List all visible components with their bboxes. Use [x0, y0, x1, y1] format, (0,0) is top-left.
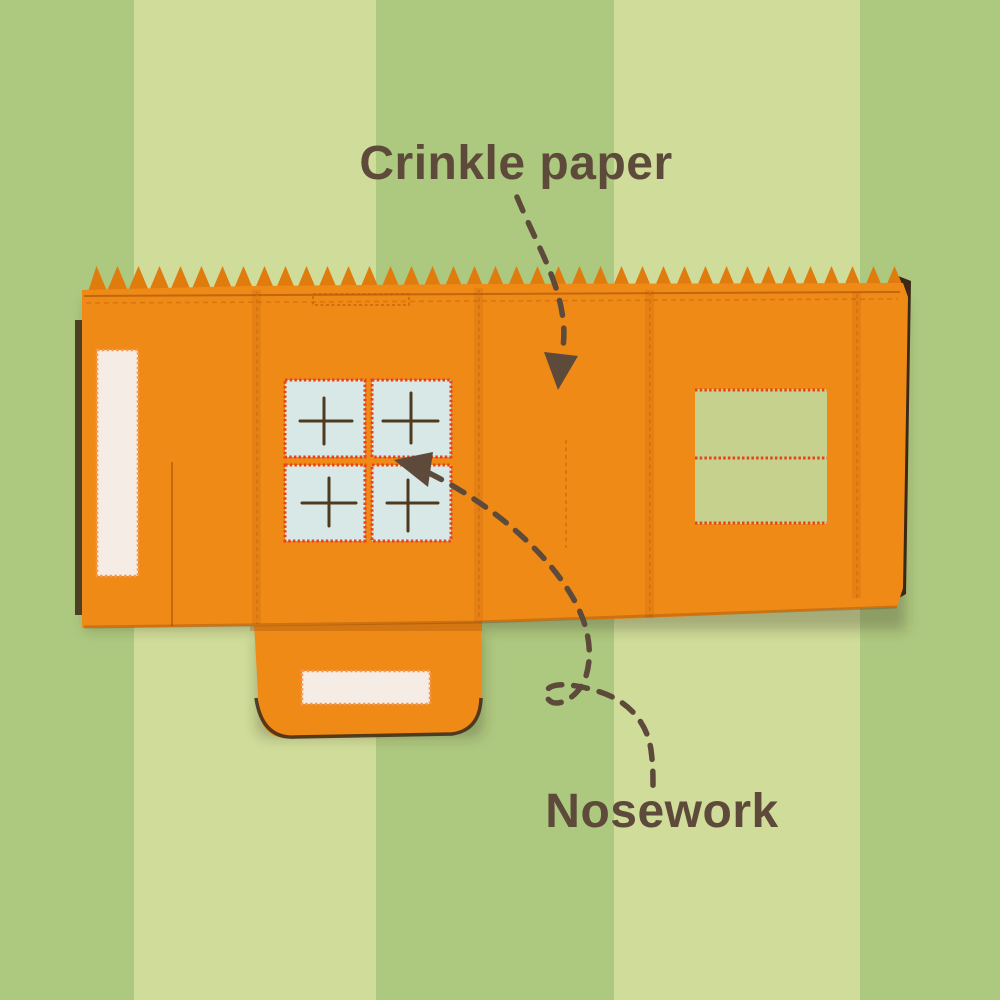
flap-cream-patch	[302, 671, 430, 704]
crinkle-paper-label: Crinkle paper	[359, 136, 672, 191]
nosework-label: Nosework	[545, 784, 778, 839]
product-annotation-scene: Crinkle paper Nosework	[0, 0, 1000, 1000]
left-cream-strip-patch	[97, 350, 138, 576]
green-pocket-patch	[695, 389, 827, 524]
bottom-flap	[250, 612, 482, 738]
